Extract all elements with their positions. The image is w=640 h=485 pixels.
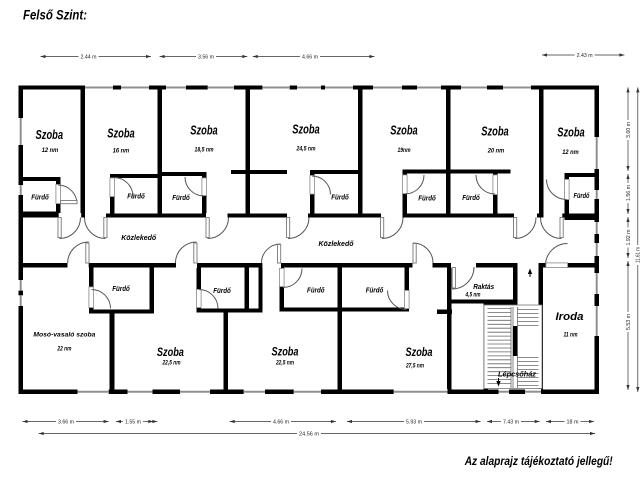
svg-text:Fürdő: Fürdő bbox=[172, 195, 190, 202]
svg-text:Szoba: Szoba bbox=[481, 124, 509, 139]
svg-text:Lépcsőház: Lépcsőház bbox=[498, 372, 537, 379]
svg-text:18 m: 18 m bbox=[567, 419, 579, 425]
svg-text:20 nm: 20 nm bbox=[487, 148, 505, 155]
svg-text:12 nm: 12 nm bbox=[562, 149, 579, 156]
svg-text:Szoba: Szoba bbox=[292, 122, 320, 137]
svg-text:Fürdő: Fürdő bbox=[307, 288, 325, 295]
svg-text:Szoba: Szoba bbox=[406, 345, 433, 359]
svg-text:Közlekedő: Közlekedő bbox=[319, 239, 354, 248]
svg-text:22 nm: 22 nm bbox=[57, 347, 72, 353]
svg-text:3.60 m: 3.60 m bbox=[626, 122, 632, 138]
svg-text:22,5 nm: 22,5 nm bbox=[275, 361, 294, 367]
svg-text:Felső Szint:: Felső Szint: bbox=[23, 7, 87, 23]
svg-text:1.56 m: 1.56 m bbox=[626, 185, 632, 201]
svg-text:Mosó-vasaló szoba: Mosó-vasaló szoba bbox=[33, 332, 95, 339]
svg-text:27,5 nm: 27,5 nm bbox=[405, 364, 424, 370]
svg-text:Az alaprajz tájékoztató jelleg: Az alaprajz tájékoztató jellegű! bbox=[464, 456, 613, 468]
svg-text:Szoba: Szoba bbox=[157, 345, 184, 359]
svg-text:Fürdő: Fürdő bbox=[331, 195, 349, 202]
svg-text:18,5 nm: 18,5 nm bbox=[195, 147, 214, 154]
svg-text:19nm: 19nm bbox=[398, 147, 411, 154]
svg-text:2.43 m: 2.43 m bbox=[577, 53, 593, 59]
svg-text:5.93 m: 5.93 m bbox=[406, 419, 422, 425]
svg-text:7.43 m: 7.43 m bbox=[503, 419, 519, 425]
svg-text:12 nm: 12 nm bbox=[42, 147, 59, 154]
svg-text:4,5 nm: 4,5 nm bbox=[465, 293, 481, 299]
svg-text:5.53 m: 5.53 m bbox=[626, 314, 632, 330]
svg-text:11.61 m: 11.61 m bbox=[636, 247, 640, 263]
svg-text:Szoba: Szoba bbox=[390, 123, 418, 138]
svg-text:Szoba: Szoba bbox=[272, 345, 299, 359]
svg-text:4.66 m: 4.66 m bbox=[302, 54, 318, 60]
svg-text:22,5 nm: 22,5 nm bbox=[162, 361, 181, 367]
svg-text:Fürdő: Fürdő bbox=[112, 286, 130, 293]
svg-text:Fürdő: Fürdő bbox=[31, 195, 49, 202]
svg-text:Szoba: Szoba bbox=[107, 126, 135, 141]
svg-text:Szoba: Szoba bbox=[190, 123, 218, 138]
svg-text:Fürdő: Fürdő bbox=[462, 195, 480, 202]
svg-text:Közlekedő: Közlekedő bbox=[121, 233, 156, 242]
svg-text:1.55 m: 1.55 m bbox=[125, 419, 141, 425]
svg-text:Raktás: Raktás bbox=[473, 284, 494, 291]
svg-text:Fürdő: Fürdő bbox=[213, 288, 231, 295]
svg-text:1.92 m: 1.92 m bbox=[626, 230, 632, 246]
svg-text:4.66 m: 4.66 m bbox=[273, 419, 289, 425]
svg-text:Fürdő: Fürdő bbox=[418, 196, 436, 203]
svg-text:3.66 m: 3.66 m bbox=[58, 419, 74, 425]
svg-text:11 nm: 11 nm bbox=[564, 332, 578, 339]
svg-text:2.44 m: 2.44 m bbox=[81, 54, 97, 60]
svg-text:Szoba: Szoba bbox=[557, 125, 585, 140]
svg-text:Fürdő: Fürdő bbox=[574, 193, 591, 200]
svg-text:24.56 m: 24.56 m bbox=[299, 431, 319, 437]
svg-text:Szoba: Szoba bbox=[36, 127, 64, 142]
svg-text:Fürdő: Fürdő bbox=[127, 194, 145, 201]
svg-text:Fürdő: Fürdő bbox=[366, 288, 384, 295]
svg-text:Iroda: Iroda bbox=[556, 311, 584, 323]
svg-text:16 nm: 16 nm bbox=[113, 148, 130, 155]
svg-text:24,5 nm: 24,5 nm bbox=[296, 146, 316, 153]
svg-text:3.56 m: 3.56 m bbox=[198, 54, 214, 60]
